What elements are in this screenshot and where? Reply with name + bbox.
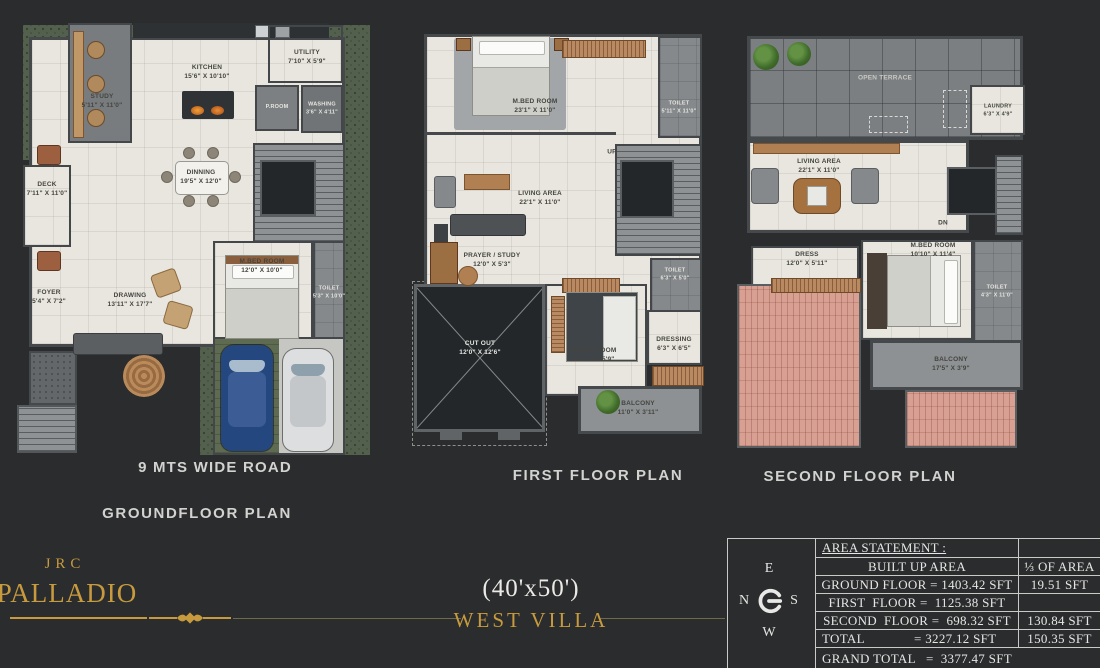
armchair-graphic bbox=[751, 168, 779, 204]
dashed-outline bbox=[869, 116, 908, 133]
side-table-graphic bbox=[456, 38, 471, 51]
divider-line bbox=[599, 618, 725, 619]
room-label-balcony2: BALCONY17'5" X 3'9" bbox=[932, 355, 970, 373]
area-statement-table: AREA STATEMENT : BUILT UP AREA ⅓ OF AREA… bbox=[815, 538, 1100, 668]
table-row: GRAND TOTAL = 3377.47 SFT bbox=[816, 648, 1100, 668]
room-label-mbed3: M.BED ROOM10'10" X 11'4" bbox=[911, 241, 956, 259]
room-label-utility: UTILITY7'10" X 5'9" bbox=[288, 48, 326, 66]
table-cell: ⅓ OF AREA bbox=[1018, 558, 1100, 575]
ground-floor-plan: STUDY5'11" X 11'0" KITCHEN15'6" X 10'10"… bbox=[15, 15, 370, 455]
room-label-cutout: CUT OUT12'0" X 12'6" bbox=[459, 339, 501, 357]
wardrobe-graphic bbox=[562, 40, 646, 58]
table-cell: TOTAL = 3227.12 SFT bbox=[816, 630, 1018, 647]
room-label-study: STUDY5'11" X 11'0" bbox=[82, 92, 123, 110]
room-label-dressing: DRESSING6'3" X 6'5" bbox=[656, 335, 692, 353]
logo-divider-line bbox=[10, 617, 147, 619]
entry-steps-graphic bbox=[17, 405, 77, 453]
dining-chair bbox=[207, 195, 219, 207]
table-cell: BUILT UP AREA bbox=[816, 558, 1018, 575]
table-cell: FIRST FLOOR = 1125.38 SFT bbox=[816, 594, 1018, 611]
side-table-graphic bbox=[434, 224, 448, 242]
staircase-graphic bbox=[995, 155, 1023, 235]
room-label-dn: DN bbox=[938, 218, 948, 227]
logo-jrc: JRC bbox=[45, 556, 86, 573]
room-label-mbed2: M.BED ROOM11'0" X 15'9" bbox=[572, 346, 617, 364]
room-label-mbed1: M.BED ROOM23'1" X 11'0" bbox=[513, 97, 558, 115]
coffee-table-graphic bbox=[807, 186, 827, 206]
dining-chair bbox=[229, 171, 241, 183]
table-row: FIRST FLOOR = 1125.38 SFT bbox=[816, 594, 1100, 612]
room-label-balcony1: BALCONY11'0" X 3'11" bbox=[618, 399, 659, 417]
room-label-up: UP bbox=[607, 147, 616, 156]
toilet-room bbox=[658, 36, 702, 138]
wardrobe-graphic bbox=[652, 366, 704, 386]
room-label-drawing: DRAWING13'11" X 17'7" bbox=[108, 291, 153, 309]
room-label-prayer: PRAYER / STUDY12'0" X 5'3" bbox=[464, 251, 521, 269]
flourish-ornament-icon bbox=[147, 611, 233, 625]
room-label-dinning: DINNING19'5" X 12'0" bbox=[180, 168, 222, 186]
room-label-laundry: LAUNDRY6'3" X 4'9" bbox=[984, 103, 1013, 118]
room-label-dress: DRESS12'0" X 5'11" bbox=[786, 250, 827, 268]
footing bbox=[440, 432, 462, 440]
villa-name-label: WEST VILLA bbox=[454, 608, 609, 633]
dining-chair bbox=[207, 147, 219, 159]
first-plan-title: FIRST FLOOR PLAN bbox=[513, 467, 684, 484]
stairwell-void bbox=[260, 160, 316, 216]
first-floor-plan: M.BED ROOM23'1" X 11'0" TOILET5'11" X 11… bbox=[412, 28, 712, 448]
room-label-living2: LIVING AREA22'1" X 11'0" bbox=[797, 157, 841, 175]
table-cell: 150.35 SFT bbox=[1018, 630, 1100, 647]
brochure-page: STUDY5'11" X 11'0" KITCHEN15'6" X 10'10"… bbox=[0, 0, 1100, 668]
tiled-roof bbox=[737, 284, 861, 448]
tiled-roof bbox=[905, 390, 1017, 448]
dashed-outline bbox=[943, 90, 967, 128]
fire-glow bbox=[211, 106, 224, 115]
fire-glow bbox=[191, 106, 204, 115]
table-row: SECOND FLOOR = 698.32 SFT 130.84 SFT bbox=[816, 612, 1100, 630]
wall-divider bbox=[424, 132, 616, 135]
entry-tile-graphic bbox=[29, 351, 77, 405]
stool-graphic bbox=[87, 75, 105, 93]
plant-graphic bbox=[787, 42, 811, 66]
room-label-toilet3: TOILET4'3" X 11'0" bbox=[981, 284, 1013, 299]
garden-right bbox=[343, 25, 370, 455]
divider-line bbox=[233, 618, 461, 619]
stool-graphic bbox=[87, 109, 105, 127]
table-row: BUILT UP AREA ⅓ OF AREA bbox=[816, 558, 1100, 576]
footing bbox=[498, 432, 520, 440]
deck-area bbox=[23, 165, 71, 247]
armchair-graphic bbox=[434, 176, 456, 208]
room-label-deck: DECK7'11" X 11'0" bbox=[27, 180, 68, 198]
room-label-washing: WASHING3'6" X 4'11" bbox=[306, 101, 338, 116]
table-cell: 19.51 SFT bbox=[1018, 576, 1100, 593]
room-label-proom: P.ROOM bbox=[266, 104, 289, 112]
cutout-void bbox=[414, 284, 545, 432]
tv-unit-graphic bbox=[753, 143, 900, 154]
compass-west-label: W bbox=[762, 625, 775, 641]
table-row: TOTAL = 3227.12 SFT 150.35 SFT bbox=[816, 630, 1100, 648]
desk-graphic bbox=[430, 242, 458, 284]
armchair-graphic bbox=[37, 251, 61, 271]
compass-east-label: E bbox=[765, 561, 774, 577]
compass-box: E N S W bbox=[727, 538, 815, 668]
room-label-terrace: OPEN TERRACE bbox=[858, 73, 912, 82]
room-label-kitchen: KITCHEN15'6" X 10'10" bbox=[184, 63, 229, 81]
ground-plan-title: GROUNDFLOOR PLAN bbox=[102, 505, 292, 522]
table-title: AREA STATEMENT : bbox=[816, 539, 1018, 557]
study-room bbox=[68, 23, 132, 143]
car-white-graphic bbox=[283, 349, 333, 451]
grand-total-cell: GRAND TOTAL = 3377.47 SFT bbox=[816, 648, 1100, 668]
sofa-graphic bbox=[450, 214, 526, 236]
sofa-graphic bbox=[73, 333, 163, 355]
room-label-toilet: TOILET5'3" X 10'0" bbox=[313, 285, 345, 300]
dining-chair bbox=[161, 171, 173, 183]
compass-south-label: S bbox=[790, 593, 798, 609]
stairwell-void bbox=[620, 160, 674, 218]
bed-graphic bbox=[887, 255, 961, 327]
logo-palladio: PALLADIO bbox=[0, 578, 137, 609]
plot-size-label: (40'x50') bbox=[482, 575, 579, 603]
wardrobe-graphic bbox=[562, 278, 620, 293]
car-blue-graphic bbox=[221, 345, 273, 451]
compass-arrow-icon bbox=[755, 587, 783, 615]
dining-chair bbox=[183, 195, 195, 207]
stairwell-void bbox=[947, 167, 997, 215]
room-label-mbed: M.BED ROOM12'0" X 10'0" bbox=[240, 257, 285, 275]
room-label-toilet2: TOILET6'3" X 5'0" bbox=[661, 267, 690, 282]
table-cell bbox=[1018, 539, 1100, 557]
second-floor-plan: OPEN TERRACE LAUNDRY6'3" X 4'9" LIVING A… bbox=[737, 28, 1033, 448]
curtain-graphic bbox=[867, 253, 887, 329]
table-cell: 130.84 SFT bbox=[1018, 612, 1100, 629]
plant-graphic bbox=[753, 44, 779, 70]
wardrobe-graphic bbox=[551, 296, 565, 353]
round-rug-graphic bbox=[123, 355, 165, 397]
table-row: AREA STATEMENT : bbox=[816, 539, 1100, 558]
wood-bench-graphic bbox=[464, 174, 510, 190]
room-label-foyer: FOYER5'4" X 7'2" bbox=[32, 288, 66, 306]
table-cell: SECOND FLOOR = 698.32 SFT bbox=[816, 612, 1018, 629]
study-bench-graphic bbox=[73, 31, 84, 138]
room-label-living: LIVING AREA22'1" X 11'0" bbox=[518, 189, 562, 207]
fireplace-graphic bbox=[182, 91, 234, 119]
armchair-graphic bbox=[851, 168, 879, 204]
compass-north-label: N bbox=[739, 593, 749, 609]
table-cell: GROUND FLOOR = 1403.42 SFT bbox=[816, 576, 1018, 593]
plant-graphic bbox=[596, 390, 620, 414]
table-cell bbox=[1018, 594, 1100, 611]
stool-graphic bbox=[87, 41, 105, 59]
armchair-graphic bbox=[37, 145, 61, 165]
table-row: GROUND FLOOR = 1403.42 SFT 19.51 SFT bbox=[816, 576, 1100, 594]
wardrobe-graphic bbox=[771, 278, 861, 293]
dining-chair bbox=[183, 147, 195, 159]
road-label: 9 MTS WIDE ROAD bbox=[138, 459, 292, 476]
room-label-toilet1: TOILET5'11" X 11'0" bbox=[662, 100, 697, 115]
second-plan-title: SECOND FLOOR PLAN bbox=[763, 468, 956, 485]
